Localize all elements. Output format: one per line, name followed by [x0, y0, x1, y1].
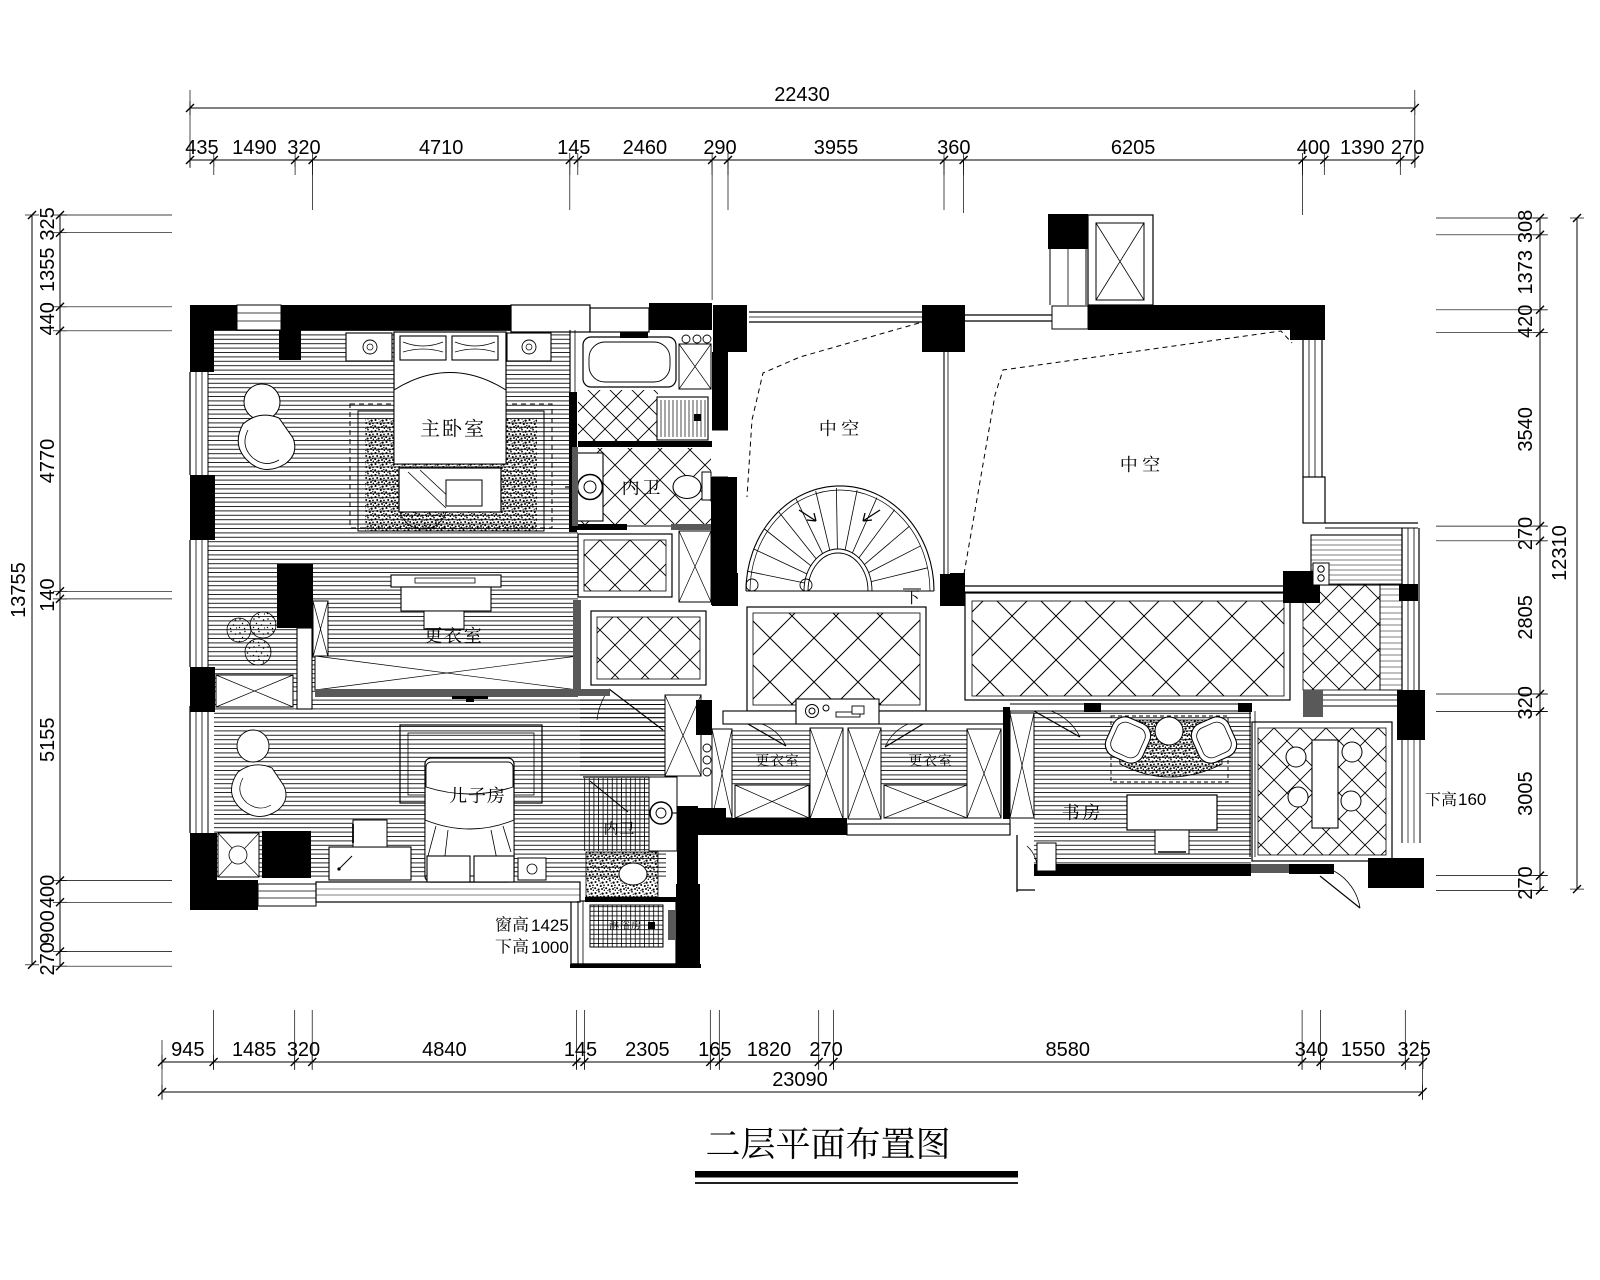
svg-text:1425: 1425 — [531, 916, 569, 935]
svg-text:400: 400 — [37, 875, 59, 908]
svg-text:160: 160 — [1458, 790, 1486, 809]
svg-text:945: 945 — [171, 1039, 204, 1061]
svg-text:2305: 2305 — [625, 1039, 670, 1061]
svg-text:1485: 1485 — [232, 1039, 277, 1061]
svg-text:270: 270 — [809, 1039, 842, 1061]
svg-text:6205: 6205 — [1111, 137, 1156, 159]
svg-text:435: 435 — [185, 137, 218, 159]
svg-text:1355: 1355 — [37, 248, 59, 293]
svg-text:440: 440 — [37, 302, 59, 335]
svg-text:1820: 1820 — [747, 1039, 792, 1061]
svg-text:4840: 4840 — [422, 1039, 467, 1061]
svg-text:270: 270 — [1391, 137, 1424, 159]
svg-text:12310: 12310 — [1549, 525, 1571, 581]
svg-text:145: 145 — [557, 137, 590, 159]
svg-text:1373: 1373 — [1515, 250, 1537, 295]
svg-text:308: 308 — [1515, 210, 1537, 243]
svg-text:320: 320 — [287, 1039, 320, 1061]
svg-text:23090: 23090 — [772, 1069, 828, 1091]
svg-text:1390: 1390 — [1340, 137, 1385, 159]
svg-text:3955: 3955 — [814, 137, 859, 159]
svg-text:4710: 4710 — [419, 137, 464, 159]
svg-text:1490: 1490 — [232, 137, 277, 159]
svg-text:165: 165 — [698, 1039, 731, 1061]
svg-text:8580: 8580 — [1046, 1039, 1091, 1061]
svg-text:2460: 2460 — [623, 137, 668, 159]
svg-text:1000: 1000 — [531, 938, 569, 957]
svg-text:325: 325 — [37, 207, 59, 240]
svg-text:145: 145 — [564, 1039, 597, 1061]
svg-text:270: 270 — [1515, 517, 1537, 550]
svg-text:325: 325 — [1398, 1039, 1431, 1061]
svg-text:3005: 3005 — [1515, 771, 1537, 816]
svg-text:320: 320 — [1515, 686, 1537, 719]
svg-text:290: 290 — [703, 137, 736, 159]
svg-text:22430: 22430 — [774, 84, 830, 106]
svg-text:270: 270 — [37, 942, 59, 975]
svg-text:3540: 3540 — [1515, 407, 1537, 452]
svg-text:320: 320 — [287, 137, 320, 159]
svg-text:5155: 5155 — [37, 717, 59, 762]
svg-text:900: 900 — [37, 910, 59, 943]
svg-text:140: 140 — [37, 578, 59, 611]
svg-text:13755: 13755 — [8, 562, 30, 618]
svg-text:1550: 1550 — [1341, 1039, 1386, 1061]
svg-text:270: 270 — [1515, 866, 1537, 899]
svg-text:2805: 2805 — [1515, 595, 1537, 640]
svg-text:400: 400 — [1297, 137, 1330, 159]
svg-text:340: 340 — [1295, 1039, 1328, 1061]
svg-text:360: 360 — [937, 137, 970, 159]
svg-text:4770: 4770 — [37, 439, 59, 484]
